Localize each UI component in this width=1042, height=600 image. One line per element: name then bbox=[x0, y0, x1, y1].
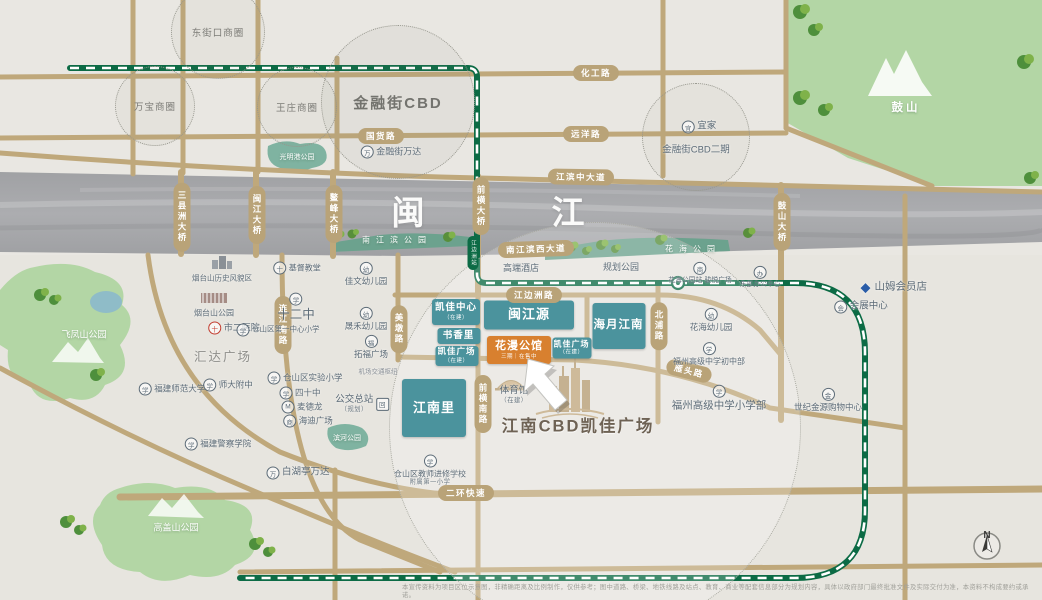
location-map: 闽 江 江边洲站 东街口商圈万宝商圈王庄商圈金融街CBD化工路国货路远洋路江滨中… bbox=[0, 0, 1042, 600]
pointer-arrow-layer bbox=[0, 0, 1042, 600]
pointer-arrow bbox=[524, 359, 567, 410]
